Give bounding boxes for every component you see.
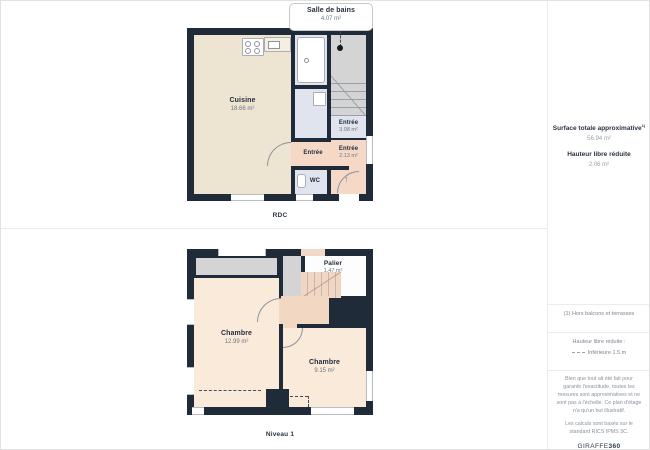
niveau1-caption: Niveau 1 [187, 431, 373, 438]
callout-leader-dot [337, 45, 343, 51]
legend-label: Inférieure 1.5 m [588, 350, 627, 356]
room-chambre-a-name: Chambre [221, 330, 252, 339]
stove-icon [242, 38, 264, 56]
disclaimer-block: Bien que tout ait été fait pour garantir… [547, 376, 650, 450]
window-rdc-bottom-1 [231, 194, 264, 201]
room-cuisine-area: 18.66 m² [231, 106, 255, 114]
staircase-niveau1 [301, 272, 341, 298]
surface-total-value: 56.94 m² [547, 136, 650, 142]
chimney-strip [283, 256, 301, 298]
kitchen-counter-icon [264, 37, 291, 52]
room-palier-name: Palier [305, 260, 361, 268]
room-entree-a-area: 3.08 m² [339, 127, 358, 134]
disclaimer-text: Bien que tout ait été fait pour garantir… [547, 376, 650, 416]
sidebar-rule-2 [547, 332, 650, 333]
door-opening-kitchen [291, 142, 295, 166]
room-entree-a: Entrée 3.08 m² [331, 116, 366, 138]
room-entree-middle-name: Entrée [303, 150, 322, 158]
reduced-height-value: 2.06 m² [547, 162, 650, 168]
callout-room-name: Salle de bains [290, 7, 372, 16]
window-rdc-right [366, 136, 373, 164]
reduced-height-legend-line [572, 352, 585, 353]
rdc-caption: RDC [187, 212, 373, 219]
wall-stub [266, 389, 289, 407]
utility-panel-icon [313, 92, 326, 106]
room-cuisine-name: Cuisine [230, 97, 256, 106]
room-chambre-a-area: 12.99 m² [225, 339, 249, 347]
room-chambre-b-name: Chambre [309, 359, 340, 368]
info-sidebar: Surface totale approximative1) 56.94 m² … [547, 1, 650, 450]
stair-landing [331, 35, 366, 76]
legend-title: Hauteur libre réduite : [547, 339, 650, 345]
legend-block: Hauteur libre réduite : Inférieure 1.5 m [547, 339, 650, 356]
toilet-icon [297, 174, 306, 188]
room-cuisine: Cuisine 18.66 m² [194, 35, 291, 194]
sidebar-rule-1 [547, 304, 650, 305]
callout-room-area: 4.07 m² [290, 16, 372, 24]
room-palier: Palier 1.47 m² [305, 260, 361, 275]
totals-block: Surface totale approximative1) 56.94 m² … [547, 123, 650, 168]
room-chambre-b-area: 9.15 m² [314, 368, 334, 376]
giraffe360-logo: GIRAFFE360 [547, 443, 650, 450]
footnote-block: (1) Hors balcons et terrasses [547, 311, 650, 317]
reduced-height-dashed-b2 [308, 396, 309, 407]
reduced-height-dashed-a [199, 390, 261, 391]
room-entree-a-name: Entrée [339, 120, 358, 128]
logo-suffix: 360 [608, 443, 620, 450]
window-n1-right [366, 371, 373, 401]
staircase-rdc [331, 76, 366, 116]
plans-divider [1, 228, 547, 229]
surface-total-title: Surface totale approximative1) [547, 123, 650, 132]
reduced-height-title: Hauteur libre réduite [547, 151, 650, 158]
room-chambre-a: Chambre 12.99 m² [194, 278, 279, 407]
rdc-floorplan: Cuisine 18.66 m² Entrée WC [187, 28, 373, 201]
surface-total-footnote-marker: 1) [642, 123, 646, 128]
room-palier-area: 1.47 m² [305, 268, 361, 275]
window-n1-left-1 [187, 299, 194, 325]
footnote-text: (1) Hors balcons et terrasses [547, 311, 650, 317]
reduced-height-dashed-b [290, 396, 308, 397]
room-entree-middle: Entrée [295, 142, 331, 166]
niveau1-floorplan: Chambre 12.99 m² Palier 1.47 m² Chambre … [187, 249, 373, 415]
floorplan-page: Salle de bains 4.07 m² Cuisine 18.66 m² [0, 0, 650, 450]
entry-arrow-icon: ↑ [344, 175, 349, 184]
room-entree-b-area: 2.13 m² [339, 153, 358, 160]
opening-n1-top [301, 249, 325, 256]
front-door-gap [339, 194, 359, 201]
logo-prefix: GIRAFFE [577, 443, 608, 450]
reduced-height-band [196, 258, 277, 275]
window-n1-bottom-2 [311, 407, 354, 415]
legend-row: Inférieure 1.5 m [547, 350, 650, 356]
shower-icon [297, 37, 325, 83]
window-n1-left-2 [187, 367, 194, 395]
window-n1-top [218, 249, 266, 256]
room-entree-b-name: Entrée [339, 146, 358, 154]
room-entree-b: Entrée 2.13 m² [331, 140, 366, 166]
sidebar-rule-3 [547, 370, 650, 371]
standard-text: Les calculs sont basés sur le standard R… [547, 421, 650, 437]
bathroom-callout: Salle de bains 4.07 m² [289, 3, 373, 31]
landing-area [281, 296, 329, 324]
window-rdc-bottom-2 [296, 194, 313, 201]
window-n1-bottom-1 [192, 407, 204, 415]
